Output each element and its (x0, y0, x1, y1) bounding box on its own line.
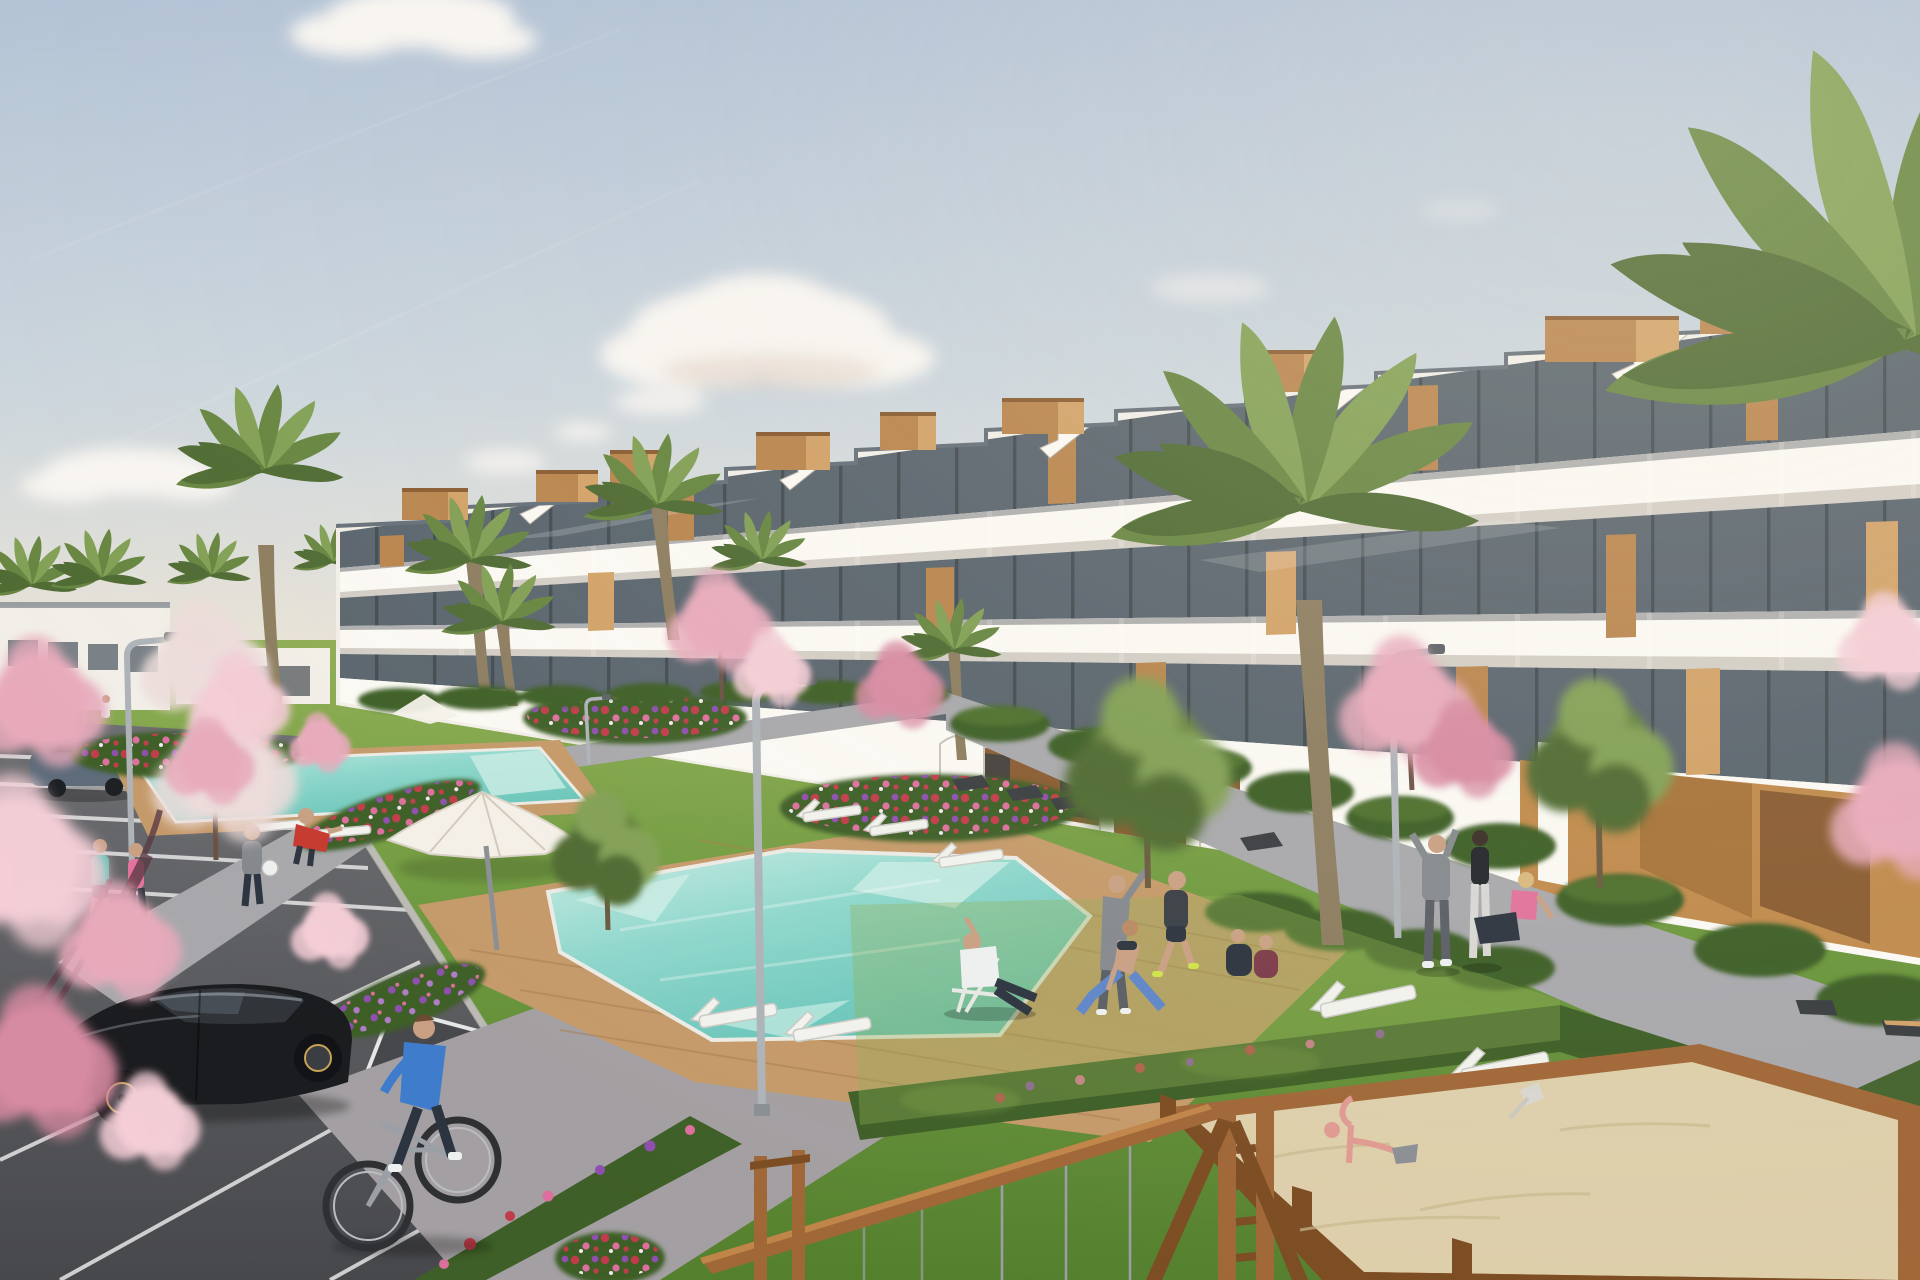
sunlight-wash (0, 0, 1920, 1280)
render-viewport (0, 0, 1920, 1280)
scene-canvas (0, 0, 1920, 1280)
